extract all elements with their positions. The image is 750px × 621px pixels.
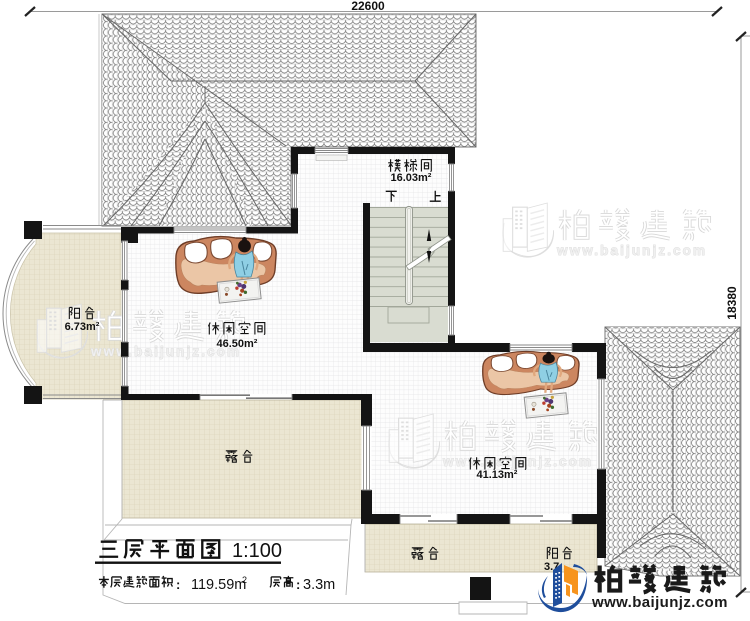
svg-text:2: 2 (242, 575, 247, 585)
svg-text:1:100: 1:100 (232, 540, 282, 562)
svg-text:16.03m²: 16.03m² (391, 172, 432, 184)
svg-text:41.13m²: 41.13m² (477, 469, 518, 481)
svg-text::: : (296, 577, 300, 592)
svg-text::: : (176, 577, 180, 592)
svg-text:www.baijunjz.com: www.baijunjz.com (591, 594, 728, 611)
svg-text:3.3m: 3.3m (303, 577, 335, 593)
svg-text:18380: 18380 (725, 286, 739, 320)
svg-text:22600: 22600 (351, 0, 385, 13)
svg-text:6.73m²: 6.73m² (65, 321, 100, 333)
svg-text:46.50m²: 46.50m² (217, 338, 258, 350)
svg-text:119.59m: 119.59m (191, 577, 246, 593)
